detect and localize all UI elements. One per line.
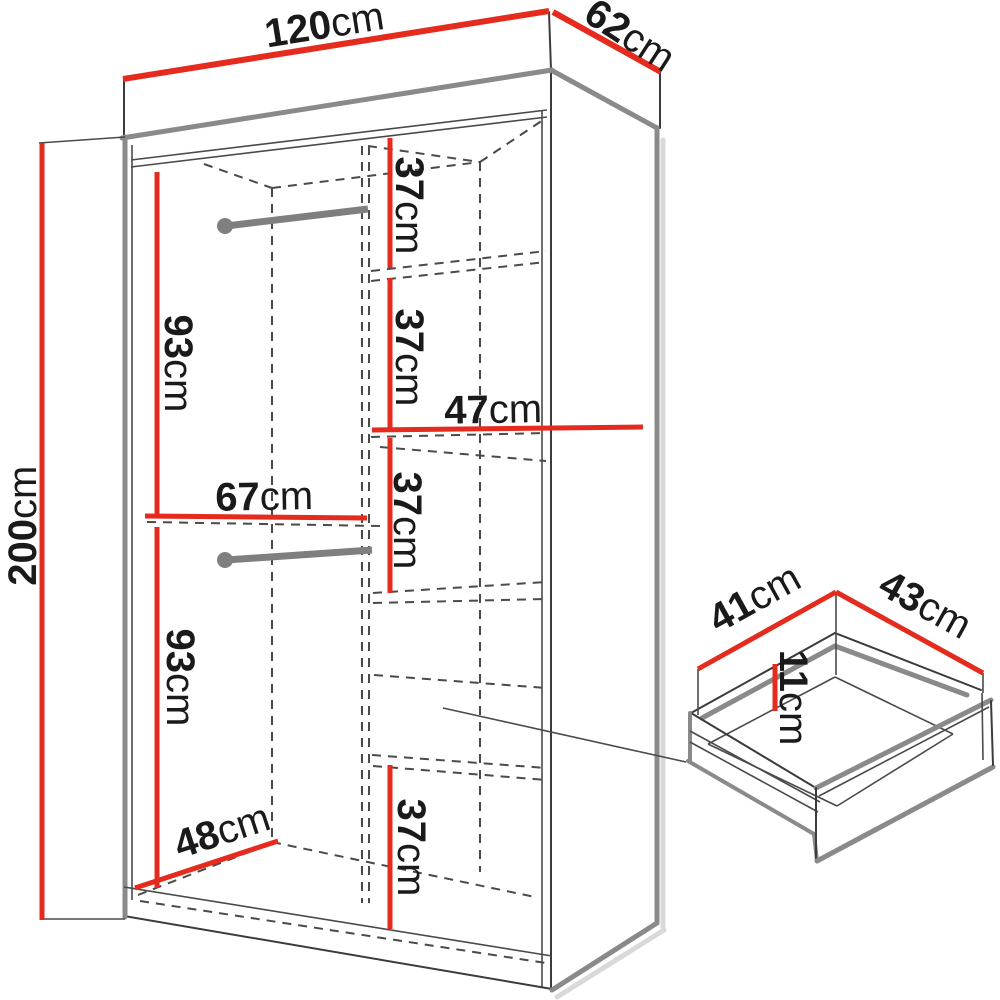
right-side-panel — [551, 70, 657, 990]
svg-text:47: 47 — [444, 388, 489, 433]
label-hang-upper: 93 cm — [156, 315, 200, 413]
svg-text:cm: cm — [387, 353, 431, 406]
svg-text:37: 37 — [389, 799, 433, 844]
svg-text:cm: cm — [488, 387, 542, 432]
wardrobe-dimension-diagram: 120 cm 62 cm 200 cm 93 cm 93 cm 67 cm 48… — [0, 0, 1000, 1000]
label-shelf4: 37 cm — [389, 799, 433, 897]
label-hang-lower: 93 cm — [158, 629, 202, 727]
svg-text:67: 67 — [215, 475, 260, 520]
diagram-canvas: 120 cm 62 cm 200 cm 93 cm 93 cm 67 cm 48… — [0, 0, 1000, 1000]
svg-text:37: 37 — [387, 309, 431, 354]
svg-text:cm: cm — [259, 474, 313, 519]
svg-text:cm: cm — [156, 359, 200, 412]
svg-text:cm: cm — [389, 843, 433, 896]
svg-text:cm: cm — [1, 466, 45, 519]
svg-text:cm: cm — [387, 201, 431, 254]
label-shelf-width: 47 cm — [444, 387, 543, 433]
drawer-detail — [688, 633, 993, 861]
svg-text:200: 200 — [1, 519, 45, 586]
svg-text:37: 37 — [387, 157, 431, 202]
label-shelf3: 37 cm — [385, 472, 429, 570]
svg-text:cm: cm — [158, 673, 202, 726]
label-drawer-height: 11 cm — [771, 650, 815, 746]
label-shelf2: 37 cm — [387, 309, 431, 407]
label-shelf1: 37 cm — [387, 157, 431, 255]
label-drawer-width: 41 cm — [701, 556, 808, 642]
svg-text:cm: cm — [385, 516, 429, 569]
svg-text:93: 93 — [156, 315, 200, 360]
svg-text:cm: cm — [771, 692, 815, 745]
label-left-width: 67 cm — [215, 474, 314, 520]
label-drawer-depth: 43 cm — [872, 562, 979, 648]
svg-text:37: 37 — [385, 472, 429, 517]
label-height: 200 cm — [1, 466, 45, 586]
svg-text:11: 11 — [771, 650, 815, 692]
svg-text:93: 93 — [158, 629, 202, 674]
